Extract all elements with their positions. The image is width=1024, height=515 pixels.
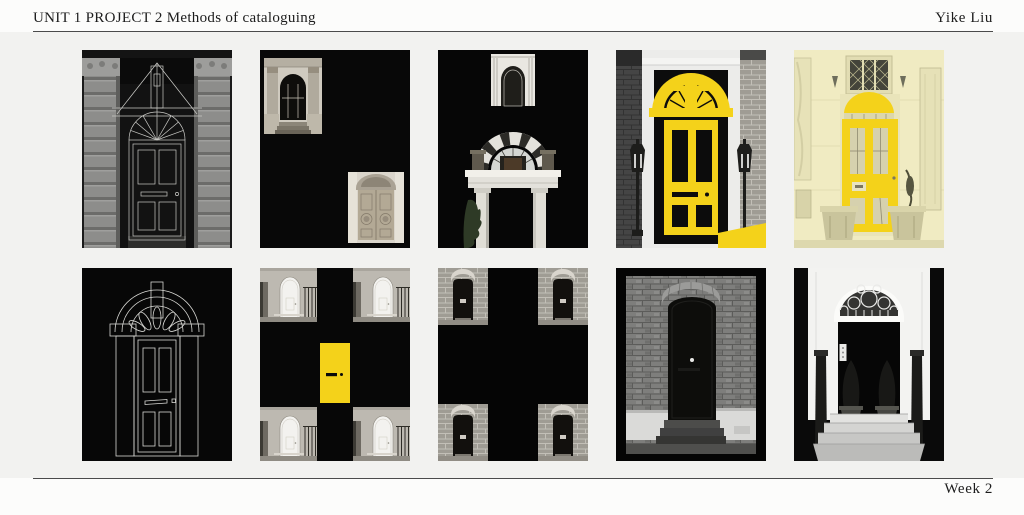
artwork-two-door-photos-on-black	[260, 50, 410, 248]
artwork-blacked-out-georgian-entrance	[794, 268, 944, 461]
artwork-yellow-tinted-entrance	[794, 50, 944, 248]
author-name: Yike Liu	[935, 10, 993, 27]
tinted-entrance-illustration	[794, 50, 944, 248]
brick-door-photo-illustration	[616, 268, 766, 461]
portfolio-sheet: UNIT 1 PROJECT 2 Methods of cataloguing …	[0, 0, 1024, 515]
door-photo-bottom-right	[348, 172, 404, 243]
planter-left	[820, 206, 858, 242]
artwork-black-door-in-brick-wall	[616, 268, 766, 461]
artwork-columned-doorway-line-overlay	[82, 50, 232, 248]
door-photo-illustration	[82, 50, 232, 248]
fanlight-window	[846, 56, 892, 94]
planter-right	[888, 206, 926, 242]
yellow-door-small	[320, 343, 350, 403]
door-photo-top-left	[264, 58, 322, 134]
artwork-yellow-door-diagram-over-photo	[616, 50, 766, 248]
artwork-four-corners-black-cross	[438, 268, 588, 461]
artwork-stacked-door-totem	[438, 50, 588, 248]
door-line-drawing	[82, 268, 232, 461]
doorknob	[690, 358, 694, 362]
corner-collage-yellow-door	[260, 268, 410, 461]
bottom-rule	[33, 478, 993, 479]
week-label: Week 2	[944, 481, 993, 498]
corner-collage-cross	[438, 268, 588, 461]
artwork-four-corners-yellow-centre	[260, 268, 410, 461]
georgian-entrance-illustration	[794, 268, 944, 461]
door-totem-illustration	[438, 50, 588, 248]
artwork-white-line-door-drawing	[82, 268, 232, 461]
page-title: UNIT 1 PROJECT 2 Methods of cataloguing	[33, 10, 316, 27]
door-collage-illustration	[260, 50, 410, 248]
yellow-door-photo-illustration	[616, 50, 766, 248]
